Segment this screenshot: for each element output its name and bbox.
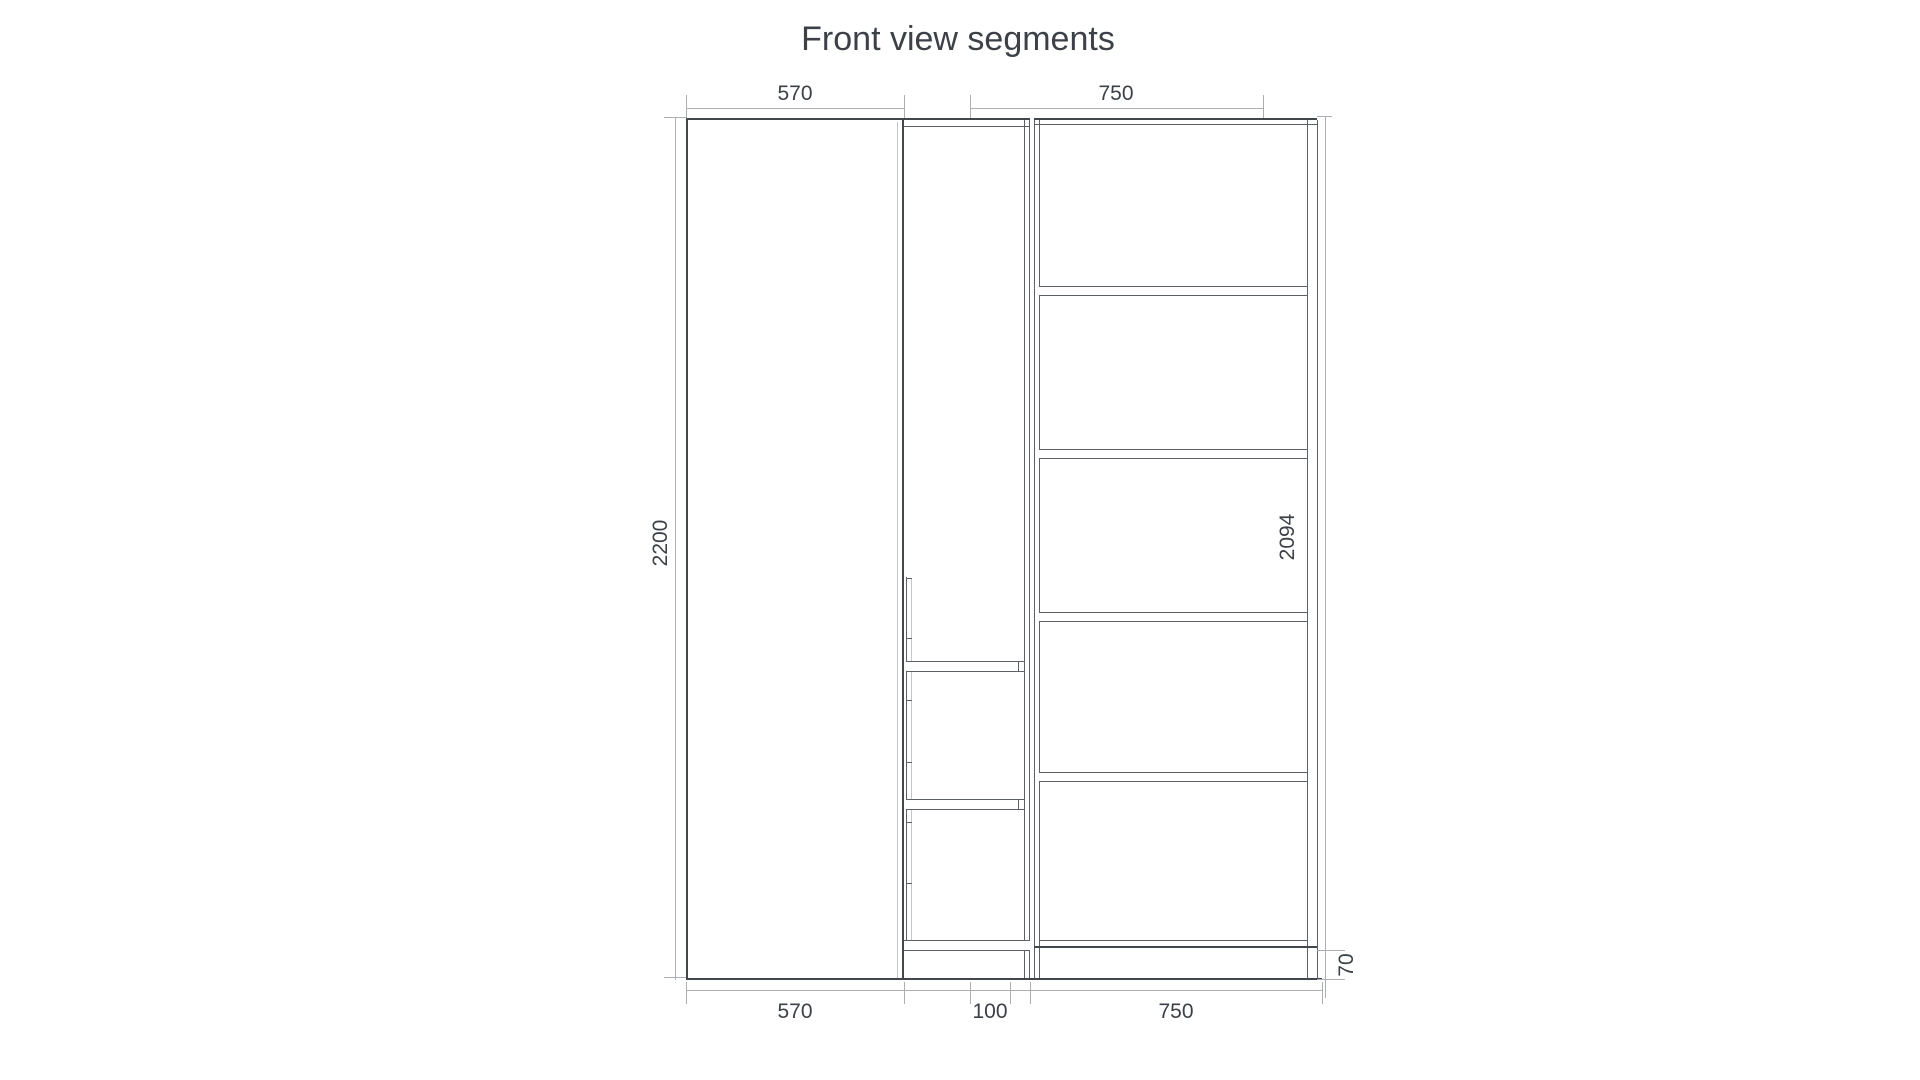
dim-ext xyxy=(664,117,686,118)
shelf-4 xyxy=(1039,772,1307,782)
dim-line-top-570 xyxy=(686,108,904,109)
dim-tick xyxy=(970,95,971,118)
strip-tick xyxy=(906,883,912,884)
shelf-2 xyxy=(1039,449,1307,459)
dim-label-bottom-570: 570 xyxy=(755,1000,835,1024)
strip-tick xyxy=(906,762,912,763)
dim-tick xyxy=(1263,95,1264,118)
dim-line-top-750 xyxy=(970,108,1263,109)
dim-label-bottom-750: 750 xyxy=(1136,1000,1216,1024)
middle-board-lower-cap xyxy=(1018,799,1019,810)
left-door-panel xyxy=(686,118,904,980)
right-top-board-bottom-edge xyxy=(1034,124,1317,125)
middle-top-board-bottom-edge xyxy=(904,126,1030,127)
dim-line-left-2200 xyxy=(675,117,676,980)
strip-tick xyxy=(906,700,912,701)
middle-board-upper-cap xyxy=(1018,661,1019,672)
dim-tick xyxy=(1030,982,1031,1004)
right-top-board-top-edge xyxy=(1034,118,1317,120)
right-left-panel-inner xyxy=(1039,120,1040,979)
strip-tick xyxy=(906,638,912,639)
middle-strip-line-2 xyxy=(911,578,912,941)
dim-label-right-2094: 2094 xyxy=(1276,487,1300,587)
dim-tick xyxy=(686,982,687,1004)
middle-right-panel-inner xyxy=(1024,120,1025,979)
middle-strip-line xyxy=(906,577,907,941)
dim-ext xyxy=(1317,116,1332,117)
strip-tick xyxy=(906,822,912,823)
shelf-1 xyxy=(1039,286,1307,296)
dim-tick xyxy=(686,95,687,118)
middle-top-board-top-edge xyxy=(904,118,1030,120)
dim-label-right-70: 70 xyxy=(1335,915,1359,1015)
middle-right-panel-outer xyxy=(1029,120,1030,979)
baseline xyxy=(686,978,1322,980)
drawing-canvas: Front view segments 570 750 2200 xyxy=(0,0,1920,1080)
drawing-title: Front view segments xyxy=(758,20,1158,59)
middle-board-lower xyxy=(906,799,1024,810)
middle-bottom-board xyxy=(904,940,1030,951)
right-right-panel-inner xyxy=(1307,120,1308,979)
right-left-panel-outer xyxy=(1034,120,1035,979)
middle-board-upper xyxy=(906,661,1024,672)
dim-tick xyxy=(904,982,905,1004)
dim-ext xyxy=(664,977,686,978)
dim-label-top-750: 750 xyxy=(1076,82,1156,106)
dim-tick xyxy=(1322,982,1323,1004)
dim-line-right xyxy=(1325,116,1326,998)
shelf-3 xyxy=(1039,612,1307,622)
door-edge-gap-line xyxy=(897,122,898,978)
dim-label-bottom-100: 100 xyxy=(950,1000,1030,1024)
right-bottom-board-top-edge xyxy=(1039,940,1307,941)
strip-tick xyxy=(906,578,912,579)
dim-line-bottom xyxy=(686,990,1322,991)
dim-tick xyxy=(904,95,905,118)
dim-label-top-570: 570 xyxy=(755,82,835,106)
right-bottom-board-bottom-edge xyxy=(1034,946,1317,948)
dim-label-left-2200: 2200 xyxy=(649,493,673,593)
right-right-panel-outer xyxy=(1317,120,1318,979)
